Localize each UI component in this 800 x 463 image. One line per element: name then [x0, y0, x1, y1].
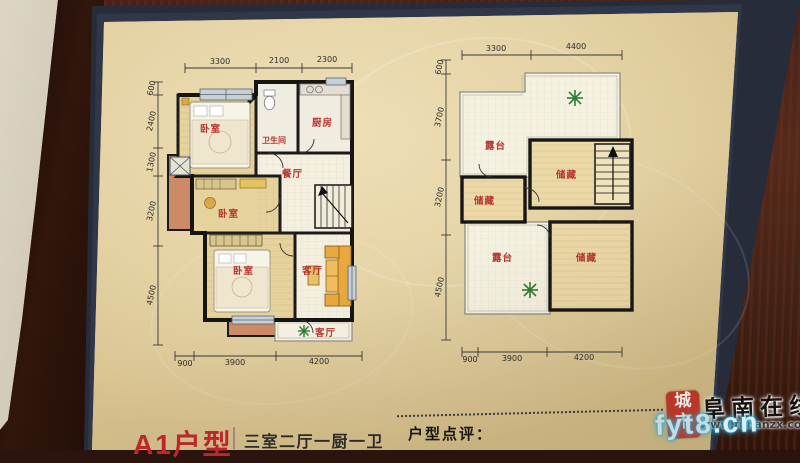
svg-text:2100: 2100 — [269, 56, 289, 65]
left-floor-plan: 3300 2100 2300 600 2400 1300 3200 4500 9… — [140, 38, 410, 373]
svg-text:露台: 露台 — [485, 140, 506, 152]
unit-type-title: A1户型 — [133, 423, 233, 463]
plant — [567, 90, 583, 106]
toilet — [264, 90, 275, 110]
left-plan-balcony — [275, 320, 352, 341]
floor-texture — [550, 222, 632, 310]
svg-text:3200: 3200 — [433, 186, 446, 208]
review-label: 户型点评： — [408, 423, 493, 444]
svg-text:1300: 1300 — [145, 151, 158, 173]
plant — [522, 282, 538, 298]
svg-text:卧室: 卧室 — [233, 265, 254, 277]
svg-text:600: 600 — [145, 80, 157, 97]
stairs — [315, 185, 352, 228]
svg-text:3200: 3200 — [145, 200, 158, 222]
svg-text:600: 600 — [433, 59, 445, 76]
unit-spec-text: 三室二厅一厨一卫 — [244, 428, 384, 452]
right-floor-plan: 3300 4400 600 3700 3200 4500 900 3900 42… — [432, 28, 662, 373]
ac-unit-box — [170, 157, 190, 175]
svg-text:3700: 3700 — [433, 106, 446, 128]
svg-text:4400: 4400 — [566, 42, 586, 51]
svg-text:3300: 3300 — [210, 57, 230, 66]
svg-text:3900: 3900 — [502, 354, 522, 363]
svg-text:900: 900 — [462, 355, 477, 364]
stairs — [595, 144, 630, 204]
svg-text:客厅: 客厅 — [314, 327, 336, 339]
terrace-bottom — [465, 222, 550, 314]
svg-text:卧室: 卧室 — [200, 123, 221, 135]
svg-text:储藏: 储藏 — [556, 169, 577, 181]
plant — [298, 325, 310, 337]
svg-text:900: 900 — [177, 359, 192, 368]
svg-text:4500: 4500 — [145, 284, 158, 306]
svg-text:4200: 4200 — [574, 353, 594, 362]
svg-text:餐厅: 餐厅 — [281, 168, 303, 180]
svg-text:4200: 4200 — [309, 357, 329, 366]
svg-text:2300: 2300 — [317, 55, 337, 64]
wardrobe — [210, 235, 262, 246]
svg-text:卫生间: 卫生间 — [262, 135, 286, 145]
svg-text:3300: 3300 — [486, 44, 506, 53]
svg-text:客厅: 客厅 — [301, 265, 323, 277]
svg-text:厨房: 厨房 — [312, 117, 333, 129]
svg-text:储藏: 储藏 — [474, 195, 495, 207]
title-divider — [233, 427, 235, 449]
svg-text:4500: 4500 — [433, 276, 446, 298]
svg-text:储藏: 储藏 — [576, 252, 597, 264]
svg-text:2400: 2400 — [145, 110, 158, 132]
bed-bottom-bedroom — [214, 250, 270, 312]
svg-text:露台: 露台 — [492, 252, 513, 264]
svg-text:卧室: 卧室 — [218, 208, 239, 220]
watermark-overlay-text: fyt8.cn — [654, 406, 759, 442]
svg-text:3900: 3900 — [225, 358, 245, 367]
